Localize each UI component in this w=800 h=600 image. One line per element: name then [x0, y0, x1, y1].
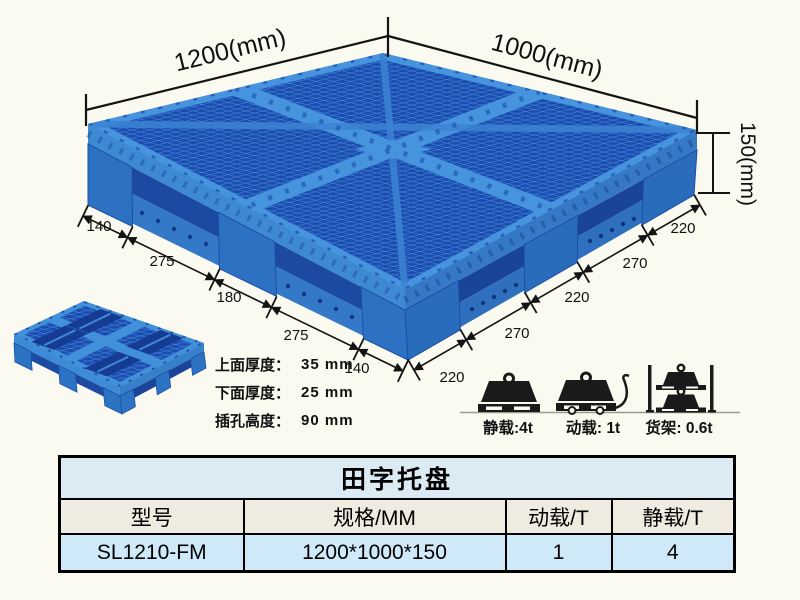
- static-load-label: 静载:4t: [483, 418, 533, 437]
- cell-dynamic-load: 1: [506, 534, 612, 572]
- cell-spec: 1200*1000*150: [244, 534, 506, 572]
- pallet-diagram: 1200(mm) 1000(mm) 150(mm) 140 275 180 27…: [0, 0, 800, 455]
- spec-table: 田字托盘 型号 规格/MM 动载/T 静载/T SL1210-FM 1200*1…: [58, 455, 736, 573]
- right-chain-seg-3: 220: [564, 289, 589, 306]
- note-fork-slot-height: 插孔高度：90 mm: [215, 406, 354, 434]
- note-top-thickness: 上面厚度：35 mm: [215, 350, 354, 378]
- right-chain-seg-1: 220: [439, 369, 464, 386]
- thickness-notes: 上面厚度：35 mm 下面厚度：25 mm 插孔高度：90 mm: [215, 350, 354, 434]
- pallet-product-sheet: 1200(mm) 1000(mm) 150(mm) 140 275 180 27…: [0, 0, 800, 600]
- dynamic-load-icon: [556, 373, 629, 414]
- load-capacity-strip: 静载:4t 动载: 1t 货架: 0.6t: [460, 365, 740, 437]
- cell-static-load: 4: [612, 534, 735, 572]
- header-dynamic-load: 动载/T: [506, 499, 612, 534]
- right-chain-seg-2: 270: [504, 325, 529, 342]
- right-chain-seg-5: 220: [670, 220, 695, 237]
- header-spec: 规格/MM: [244, 499, 506, 534]
- height-dimension-label: 150(mm): [736, 122, 759, 206]
- left-chain-seg-4: 275: [283, 327, 308, 344]
- length-dimension-label: 1200(mm): [171, 23, 288, 77]
- left-chain-seg-2: 275: [149, 253, 174, 270]
- table-row: SL1210-FM 1200*1000*150 1 4: [60, 534, 735, 572]
- static-load-icon: [478, 374, 540, 412]
- cell-model: SL1210-FM: [60, 534, 244, 572]
- note-bottom-thickness: 下面厚度：25 mm: [215, 378, 354, 406]
- dynamic-load-label: 动载: 1t: [566, 419, 620, 437]
- small-pallet-illustration: [14, 301, 206, 414]
- left-chain-seg-1: 140: [86, 218, 111, 235]
- height-dimension-bracket: [698, 133, 730, 193]
- right-chain-seg-4: 270: [622, 255, 647, 272]
- rack-load-icon: [646, 365, 716, 413]
- left-chain-seg-3: 180: [216, 289, 241, 306]
- width-dimension-label: 1000(mm): [488, 28, 605, 84]
- big-pallet-illustration: [88, 53, 697, 360]
- table-title: 田字托盘: [60, 457, 735, 500]
- rack-load-label: 货架: 0.6t: [645, 418, 712, 437]
- header-static-load: 静载/T: [612, 499, 735, 534]
- header-model: 型号: [60, 499, 244, 534]
